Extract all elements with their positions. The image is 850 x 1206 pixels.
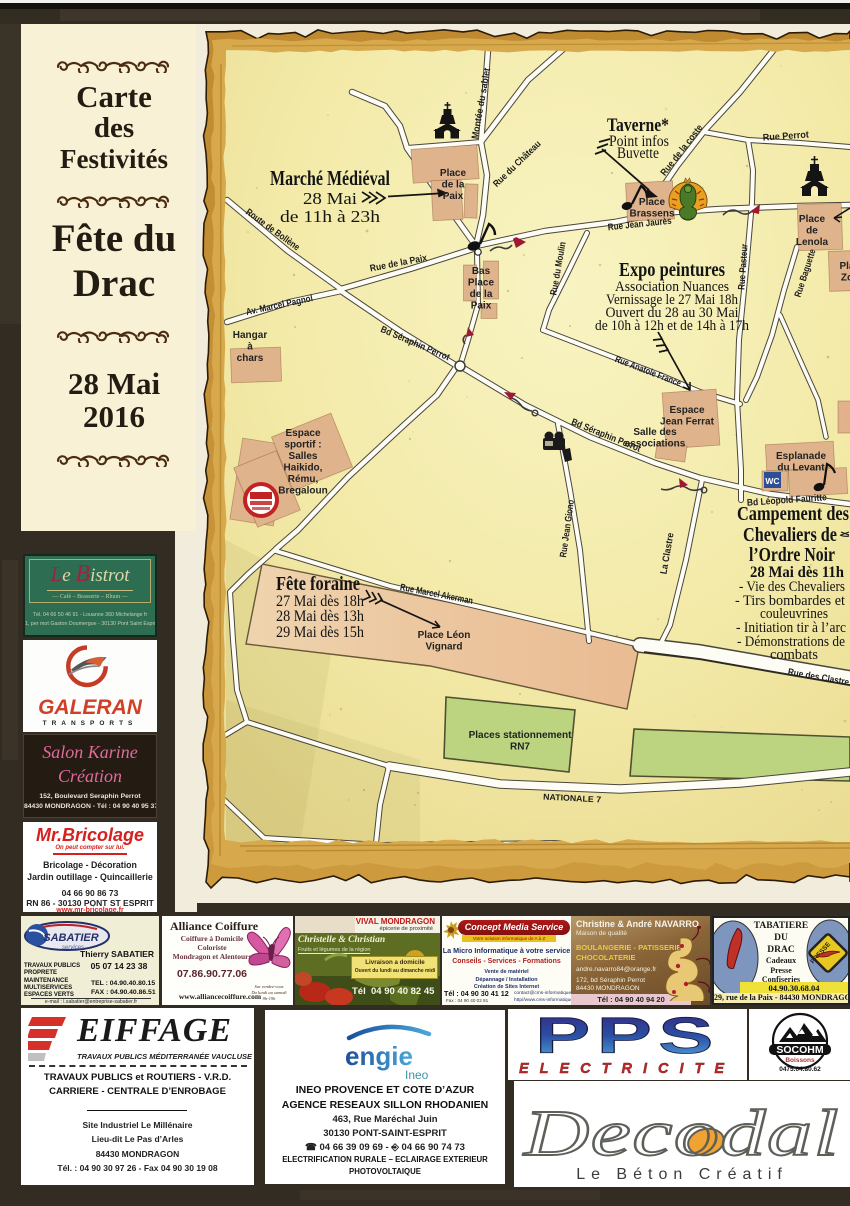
svg-text:WC: WC <box>765 476 779 486</box>
svg-text:Salle desassociations: Salle desassociations <box>625 427 686 450</box>
svg-text:Place LéonVignard: Place LéonVignard <box>418 630 471 653</box>
svg-text:Fête foraine: Fête foraine <box>276 573 360 595</box>
svg-text:Chevaliers de: Chevaliers de <box>743 524 837 546</box>
svg-text:0475.04.80.62: 0475.04.80.62 <box>779 1066 821 1073</box>
svg-text:Esplanadedu Levant: Esplanadedu Levant <box>776 451 826 474</box>
svg-text:Marché Médiéval: Marché Médiéval <box>270 166 390 190</box>
svg-text:ELECTRICITE: ELECTRICITE <box>519 1061 735 1077</box>
svg-text:PPS: PPS <box>535 1009 720 1064</box>
svg-text:engie: engie <box>345 1041 413 1071</box>
svg-text:Buvette: Buvette <box>617 145 659 162</box>
svg-text:SOCOHM: SOCOHM <box>776 1044 824 1056</box>
svg-text:Le Béton Créatif: Le Béton Créatif <box>576 1166 788 1183</box>
svg-text:Boissons: Boissons <box>785 1057 815 1064</box>
svg-text:PlaZo: PlaZo <box>839 261 850 284</box>
svg-text:28 Mai: 28 Mai <box>303 189 357 208</box>
svg-text:Expo peintures: Expo peintures <box>619 259 725 281</box>
svg-text:combats: combats <box>770 647 818 663</box>
svg-text:Decodal: Decodal <box>523 1097 840 1170</box>
svg-text:Espacesportif :SallesHaikido,R: Espacesportif :SallesHaikido,Rému,Bregal… <box>278 428 327 497</box>
svg-text:28 Mai dès 13h: 28 Mai dès 13h <box>276 608 364 625</box>
svg-text:de 10h à 12h et de 14h à 17h: de 10h à 12h et de 14h à 17h <box>595 318 749 334</box>
svg-text:Placede laPaix: Placede laPaix <box>440 168 467 202</box>
svg-text:Ineo: Ineo <box>405 1068 429 1081</box>
svg-text:29 Mai dès 15h: 29 Mai dès 15h <box>276 624 364 641</box>
svg-text:SABATIER: SABATIER <box>43 932 98 944</box>
svg-text:l’Ordre Noir: l’Ordre Noir <box>749 544 835 566</box>
svg-text:de 11h à 23h: de 11h à 23h <box>280 207 381 226</box>
